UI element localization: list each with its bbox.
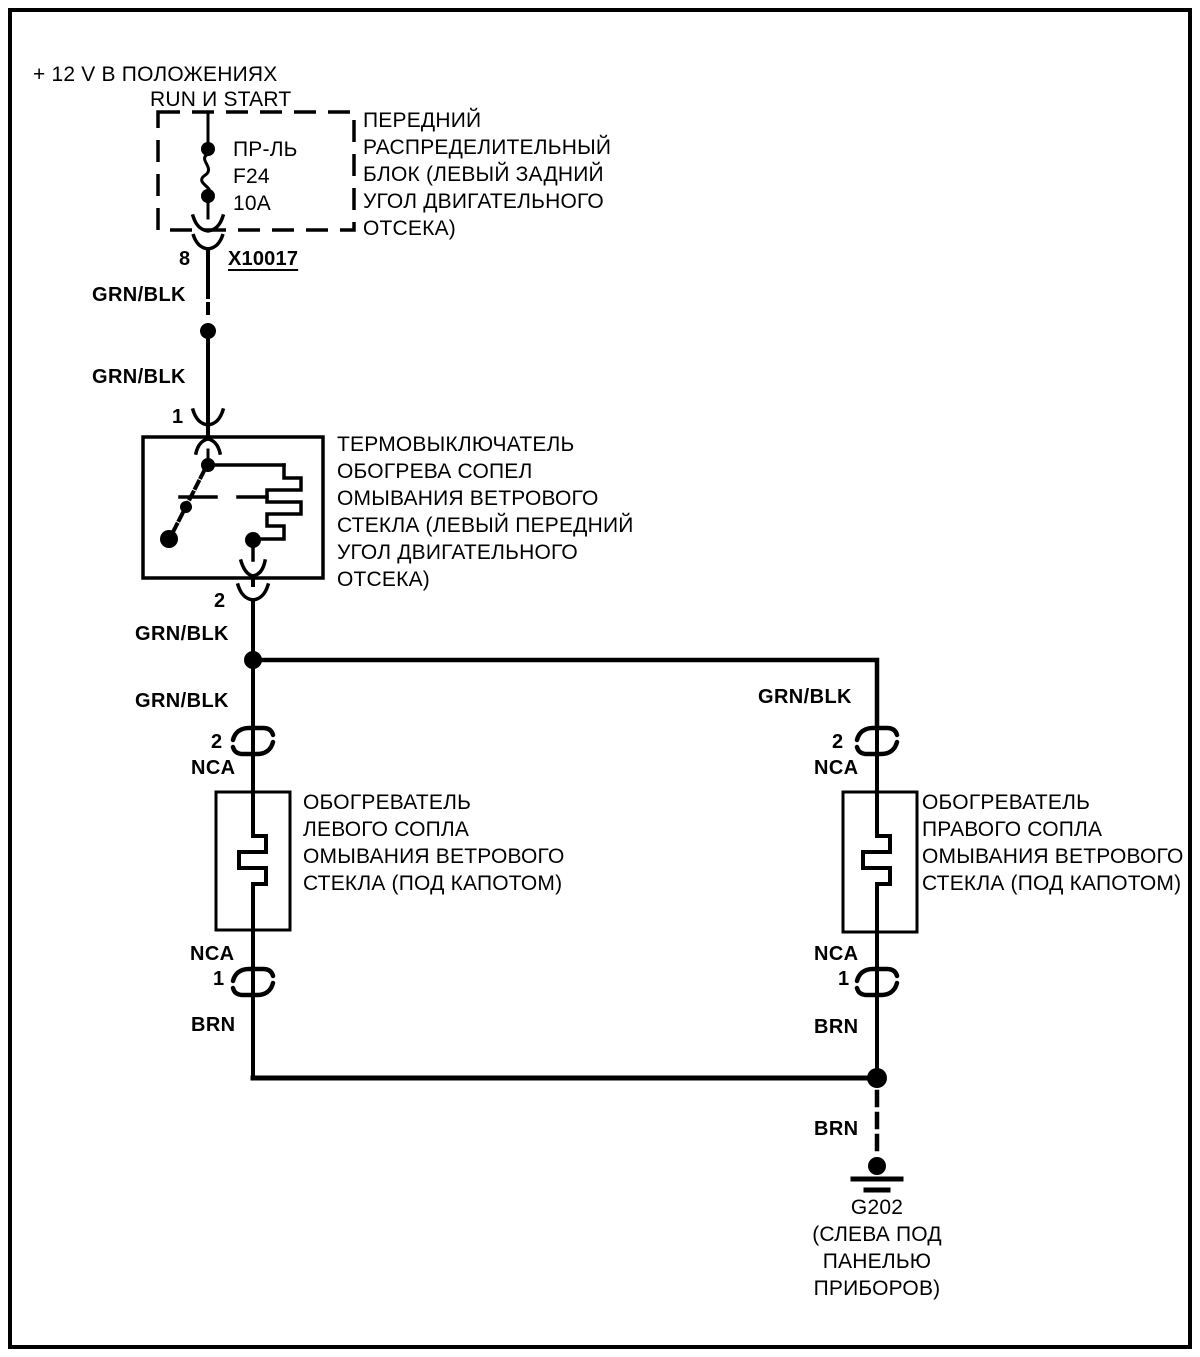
- fuse-element-squiggle: [202, 154, 210, 193]
- right-grn-blk-wire-label: GRN/BLK: [758, 684, 852, 711]
- thermal-pin2-connector-icon: [238, 585, 268, 600]
- power-source-label-line2: RUN И START: [150, 86, 291, 113]
- x10017-connector-icon: [193, 234, 223, 249]
- thermal-switch-description-line: ОМЫВАНИЯ ВЕТРОВОГО: [337, 485, 599, 512]
- fuse-rating-label: 10A: [233, 190, 271, 217]
- thermal-heating-element-meander: [253, 465, 301, 539]
- left-nca-wire-label-top: NCA: [191, 755, 236, 782]
- splice-dot: [200, 323, 216, 339]
- right-heater-symbol: [863, 727, 890, 1078]
- power-source-label-line1: + 12 V В ПОЛОЖЕНИЯХ: [33, 61, 277, 88]
- grn-blk-wire-label-4: GRN/BLK: [135, 688, 229, 715]
- thermal-switch-description-line: ОБОГРЕВА СОПЕЛ: [337, 458, 532, 485]
- right-heater-description-line: СТЕКЛА (ПОД КАПОТОМ): [922, 870, 1181, 897]
- thermal-actuator-end-dot: [160, 530, 178, 548]
- x10017-pin-number: 8: [179, 246, 190, 273]
- thermal-switch-description-line: ОТСЕКА): [337, 566, 430, 593]
- right-heater-element-meander: [863, 836, 890, 884]
- fuse-box-description-line: БЛОК (ЛЕВЫЙ ЗАДНИЙ: [363, 161, 604, 188]
- fuse-box-description-line: ПЕРЕДНИЙ: [363, 107, 481, 134]
- grn-blk-wire-label-1: GRN/BLK: [92, 282, 186, 309]
- right-heater-pin-out-number: 1: [838, 966, 849, 993]
- right-nca-wire-label-bottom: NCA: [814, 941, 859, 968]
- right-nca-wire-label-top: NCA: [814, 755, 859, 782]
- fuse-box-description-line: УГОЛ ДВИГАТЕЛЬНОГО: [363, 188, 604, 215]
- thermal-switch-pin-out-number: 2: [214, 588, 225, 615]
- left-nca-wire-label-bottom: NCA: [190, 941, 235, 968]
- thermal-switch-description-line: УГОЛ ДВИГАТЕЛЬНОГО: [337, 539, 578, 566]
- right-heater-pin-in-number: 2: [832, 729, 843, 756]
- thermal-actuator-mid-dot: [180, 501, 192, 513]
- ground-location-line: ПРИБОРОВ): [777, 1275, 977, 1302]
- grn-blk-wire-label-2: GRN/BLK: [92, 364, 186, 391]
- left-brn-wire-label: BRN: [191, 1012, 236, 1039]
- fuse-box-description-line: ОТСЕКА): [363, 215, 456, 242]
- right-heater-description-line: ПРАВОГО СОПЛА: [922, 816, 1102, 843]
- ground-location-line: ПАНЕЛЬЮ: [777, 1248, 977, 1275]
- left-heater-pin-in-number: 2: [211, 729, 222, 756]
- fuse-symbol: [193, 112, 223, 231]
- left-heater-description-line: ОМЫВАНИЯ ВЕТРОВОГО: [303, 843, 565, 870]
- x10017-connector-id: X10017: [228, 246, 298, 273]
- right-heater-description-line: ОМЫВАНИЯ ВЕТРОВОГО: [922, 843, 1184, 870]
- right-heater-outline: [843, 792, 917, 932]
- thermal-switch-symbol: [160, 439, 301, 576]
- right-brn-wire-label: BRN: [814, 1014, 859, 1041]
- fuse-box-description-line: РАСПРЕДЕЛИТЕЛЬНЫЙ: [363, 134, 611, 161]
- right-heater-description-line: ОБОГРЕВАТЕЛЬ: [922, 789, 1090, 816]
- left-heater-symbol: [239, 792, 266, 1078]
- thermal-exit-arrow-icon: [241, 561, 265, 576]
- fuse-id-label: F24: [233, 163, 270, 190]
- grn-blk-wire-label-3: GRN/BLK: [135, 621, 229, 648]
- left-heater-element-meander: [239, 836, 266, 884]
- ground-location-line: (СЛЕВА ПОД: [777, 1221, 977, 1248]
- ground-brn-wire-label: BRN: [814, 1116, 859, 1143]
- thermal-switch-description-line: ТЕРМОВЫКЛЮЧАТЕЛЬ: [337, 431, 575, 458]
- ground-wiring: [253, 1068, 901, 1190]
- wiring-diagram-page: + 12 V В ПОЛОЖЕНИЯХ RUN И START ПР-ЛЬ F2…: [0, 0, 1200, 1357]
- left-heater-description-line: ЛЕВОГО СОПЛА: [303, 816, 469, 843]
- supply-wire: [193, 249, 223, 437]
- thermal-switch-pin-in-number: 1: [172, 404, 183, 431]
- left-heater-pin-out-number: 1: [213, 966, 224, 993]
- ground-splice-dot: [867, 1068, 887, 1088]
- thermal-output-dot: [245, 532, 261, 548]
- ground-terminal-dot: [868, 1157, 886, 1175]
- fuse-name-label: ПР-ЛЬ: [233, 136, 298, 163]
- ground-id-label: G202: [797, 1194, 957, 1221]
- thermal-switch-outline: [143, 437, 323, 578]
- thermal-switch-description-line: СТЕКЛА (ЛЕВЫЙ ПЕРЕДНИЙ: [337, 512, 634, 539]
- left-heater-description-line: СТЕКЛА (ПОД КАПОТОМ): [303, 870, 562, 897]
- left-heater-description-line: ОБОГРЕВАТЕЛЬ: [303, 789, 471, 816]
